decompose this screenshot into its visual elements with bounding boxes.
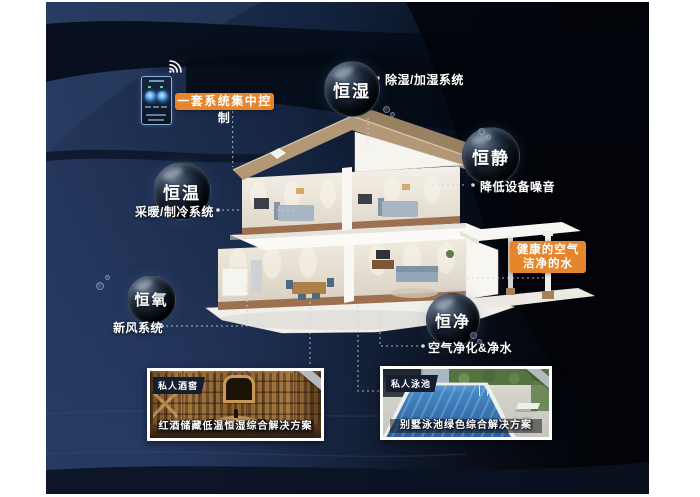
panel-label-row	[161, 106, 167, 108]
panel-footer-row	[148, 119, 164, 121]
wine-cellar-scene: 私人酒窖 红酒储藏低温恒湿综合解决方案	[150, 371, 321, 438]
wine-photo-caption: 红酒储藏低温恒湿综合解决方案	[157, 420, 314, 434]
healthy-callout-line2: 洁净的水	[510, 257, 586, 271]
mini-bubble	[105, 275, 110, 280]
panel-dial-right	[157, 91, 168, 102]
pool-photo-caption: 别墅泳池绿色综合解决方案	[390, 419, 543, 433]
mini-bubble	[478, 128, 485, 135]
panel-led-left	[148, 86, 151, 88]
mini-bubble	[486, 135, 491, 140]
pool-photo: 私人泳池 别墅泳池绿色综合解决方案	[380, 366, 552, 440]
smart-control-panel	[141, 76, 172, 125]
wine-photo-badge: 私人酒窖	[153, 377, 205, 394]
label-noise-reduction: 降低设备噪音	[480, 178, 555, 195]
line-to-pool-photo	[358, 305, 381, 391]
poster-page: 一套系统集中控制 健康的空气 洁净的水 恒湿 恒静 恒温 恒氧 恒净 除湿/加湿…	[0, 0, 700, 497]
line-purify	[380, 312, 418, 346]
mini-bubble	[383, 106, 390, 113]
panel-footer-row	[146, 114, 166, 116]
pool-photo-badge: 私人泳池	[386, 375, 438, 392]
healthy-callout-line1: 健康的空气	[510, 243, 586, 257]
bubble-constant-oxygen: 恒氧	[127, 275, 176, 324]
mini-bubble	[470, 332, 477, 339]
pool-lounge-chair	[516, 403, 540, 409]
wifi-icon	[168, 60, 184, 75]
poster-canvas: 一套系统集中控制 健康的空气 洁净的水 恒湿 恒静 恒温 恒氧 恒净 除湿/加湿…	[46, 2, 649, 494]
central-control-callout: 一套系统集中控制	[175, 93, 274, 110]
wine-bottle	[234, 409, 238, 418]
mini-bubble	[390, 112, 395, 117]
panel-led-right	[160, 86, 163, 88]
pool-scene: 私人泳池 别墅泳池绿色综合解决方案	[383, 369, 549, 437]
mini-bubble	[96, 282, 104, 290]
label-fresh-air-system: 新风系统	[113, 319, 163, 336]
label-purification-system: 空气净化&净水	[428, 339, 512, 356]
label-hvac-system: 采暖/制冷系统	[135, 203, 214, 220]
pool-ladder	[479, 384, 488, 396]
panel-header-bar	[149, 80, 164, 82]
healthy-callout: 健康的空气 洁净的水	[510, 241, 586, 273]
label-humidity-system: 除湿/加湿系统	[385, 71, 464, 88]
panel-label-row	[153, 106, 159, 108]
wine-cellar-photo: 私人酒窖 红酒储藏低温恒湿综合解决方案	[147, 368, 324, 441]
panel-label-row	[145, 106, 151, 108]
line-fresh-air	[166, 284, 247, 326]
panel-dial-left	[145, 91, 156, 102]
wine-alcove	[223, 375, 255, 403]
bubble-constant-humidity: 恒湿	[324, 61, 380, 117]
bubble-constant-quiet: 恒静	[462, 127, 520, 185]
